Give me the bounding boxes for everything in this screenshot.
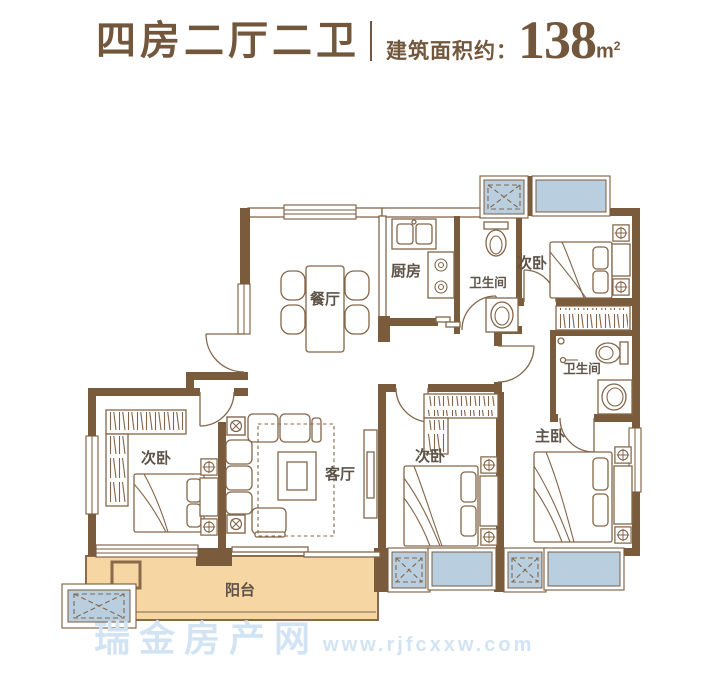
room-label-kitchen: 厨房 xyxy=(391,262,421,280)
window-bottom-1 xyxy=(428,548,496,590)
wardrobe-middle xyxy=(424,394,498,454)
room-label-bath-top: 卫生间 xyxy=(469,275,507,290)
bedside-lamp-icon xyxy=(613,225,629,241)
nightstand xyxy=(200,478,218,516)
bedside-lamp-icon xyxy=(481,529,497,545)
bath-right-door xyxy=(560,418,594,452)
entry-door xyxy=(206,334,244,372)
side-table-icon xyxy=(227,515,245,533)
room-label-master: 主卧 xyxy=(535,427,565,445)
wall-hook-icon xyxy=(558,338,564,344)
bedside-lamp-icon xyxy=(201,519,217,535)
side-table-icon xyxy=(227,417,245,435)
room-labels: 餐厅 厨房 卫生间 次卧 卫生间 主卧 次卧 客厅 次卧 阳台 xyxy=(141,254,601,599)
bedroom-middle-door xyxy=(396,388,428,422)
sink-top-icon xyxy=(486,298,518,332)
watermark: 瑞金房产网 www.rjfcxxw.com xyxy=(94,610,534,662)
bedside-lamp-icon xyxy=(201,459,217,475)
toilet-top-icon xyxy=(484,222,508,256)
bay-window-top xyxy=(532,176,610,216)
coffee-table xyxy=(278,452,316,500)
sink-right-icon xyxy=(598,380,632,414)
ac-platform-bottom-1 xyxy=(388,548,430,592)
nightstand xyxy=(612,244,630,276)
window-bottom-2 xyxy=(544,548,624,590)
ac-platform-top xyxy=(480,176,528,218)
master-suite-door xyxy=(498,346,534,382)
bed-top-right xyxy=(550,242,612,298)
bedside-lamp-icon xyxy=(481,457,497,473)
ac-platform-bottom-2 xyxy=(504,548,546,592)
room-label-living: 客厅 xyxy=(324,465,355,483)
left-bedroom-balcony-window xyxy=(96,545,198,557)
bed-master xyxy=(534,452,612,542)
room-label-bath-right: 卫生间 xyxy=(563,361,601,376)
watermark-site-name: 瑞金房产网 xyxy=(94,610,319,662)
bed-middle xyxy=(404,466,478,546)
wardrobe-nook xyxy=(556,306,630,330)
toilet-right-icon xyxy=(596,342,628,364)
nightstand xyxy=(614,466,632,524)
nightstand xyxy=(480,476,498,526)
room-label-dining: 餐厅 xyxy=(310,290,340,308)
entry-side-window xyxy=(238,284,250,334)
kitchen-sink xyxy=(392,219,436,249)
watermark-url: www.rjfcxxw.com xyxy=(323,634,534,657)
floorplan-page: 四房二厅二卫 建筑面积约： 138 m2 xyxy=(0,0,718,680)
room-label-balcony: 阳台 xyxy=(225,581,255,599)
bedside-lamp-icon xyxy=(613,279,629,295)
bed-left xyxy=(134,474,204,532)
room-label-bedroom-top-right: 次卧 xyxy=(517,254,547,272)
dining-set xyxy=(281,266,369,352)
room-label-bedroom-middle: 次卧 xyxy=(415,447,445,465)
left-bedroom-side-window xyxy=(86,436,98,514)
dining-window xyxy=(284,205,356,219)
room-label-bedroom-left: 次卧 xyxy=(141,449,171,467)
kitchen-stove xyxy=(428,252,454,298)
floorplan-drawing: 餐厅 厨房 卫生间 次卧 卫生间 主卧 次卧 客厅 次卧 阳台 xyxy=(0,0,718,680)
dining-table xyxy=(306,266,344,352)
armchair xyxy=(252,508,286,537)
bedside-lamp-icon xyxy=(615,527,631,543)
bedside-lamp-icon xyxy=(615,447,631,463)
tv-stand xyxy=(364,430,377,518)
